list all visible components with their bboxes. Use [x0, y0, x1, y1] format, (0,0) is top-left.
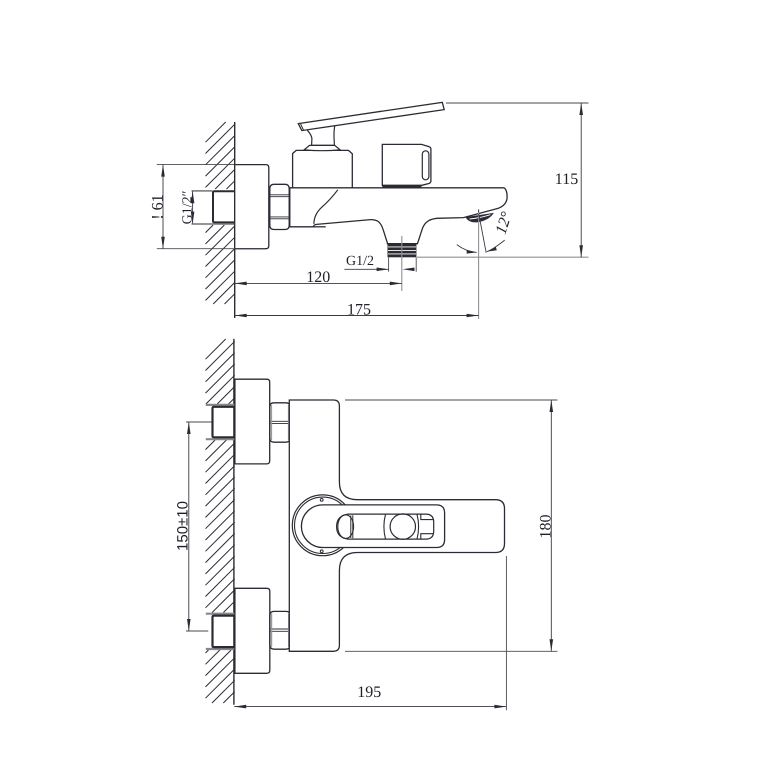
svg-text:180: 180	[537, 515, 554, 539]
svg-text:120: 120	[306, 269, 330, 286]
svg-text:175: 175	[347, 302, 371, 319]
svg-text:G1/2″: G1/2″	[180, 190, 195, 224]
svg-text:195: 195	[357, 684, 381, 701]
svg-text:G1/2: G1/2	[346, 254, 374, 269]
svg-text:! 61: ! 61	[149, 194, 166, 219]
svg-text:150±10: 150±10	[175, 501, 192, 551]
svg-text:115: 115	[555, 171, 578, 188]
